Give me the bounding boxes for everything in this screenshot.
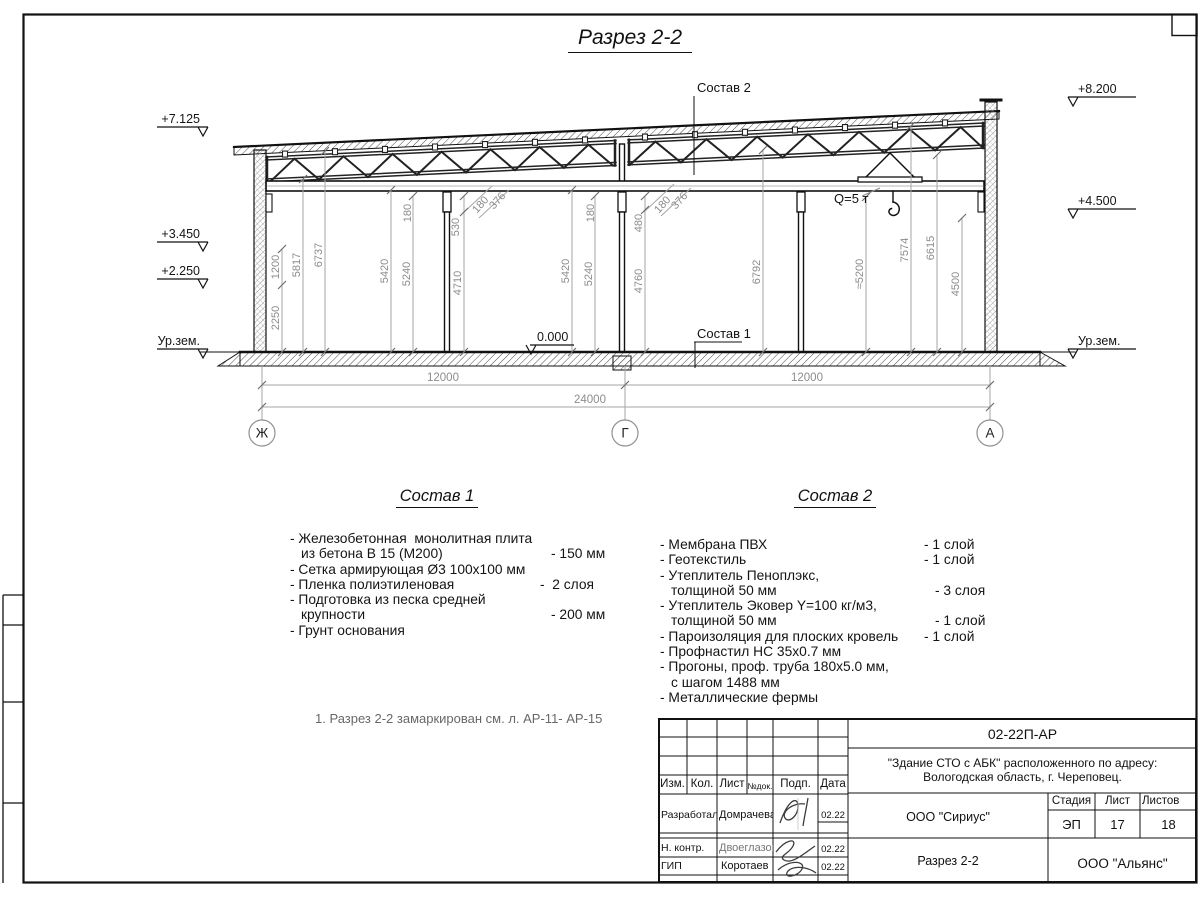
- tb-header-izm: Изм.: [658, 778, 687, 790]
- elevation-label: +8.200: [1078, 82, 1117, 96]
- tb-date: 02.22: [818, 862, 848, 873]
- tb-header-data: Дата: [818, 778, 848, 790]
- tb-sheets-label: Листов: [1142, 795, 1197, 807]
- tb-project-line2: Вологодская область, г. Череповец.: [848, 770, 1197, 784]
- dim-label: 6737: [313, 243, 325, 267]
- dim-label: 6792: [751, 260, 763, 284]
- tb-header-kol: Кол.: [687, 778, 717, 790]
- page-title: Разрез 2-2: [430, 26, 830, 50]
- crane-hook-icon: [889, 202, 899, 215]
- zero-level-label: 0.000: [537, 330, 568, 344]
- tb-date: 02.22: [818, 844, 848, 855]
- wall-bracket-right: [978, 192, 984, 212]
- dim-label: 5420: [560, 259, 572, 283]
- list-item: - Грунт основания: [290, 623, 605, 638]
- axis-bubble-zh: Ж: [256, 426, 269, 441]
- dim-label: 5240: [401, 262, 413, 286]
- column-2: [620, 212, 625, 352]
- list-item: - Мембрана ПВХ- 1 слой: [660, 537, 985, 552]
- list-item: из бетона В 15 (М200)- 150 мм: [290, 546, 605, 561]
- wall-bracket-left: [266, 194, 272, 212]
- tb-document-code: 02-22П-АР: [848, 726, 1197, 742]
- list-item: толщиной 50 мм- 3 слоя: [660, 583, 985, 598]
- dim-label: 1200: [270, 255, 282, 279]
- corner-stamp-box: [1172, 15, 1197, 36]
- elevation-label: Ур.зем.: [158, 334, 200, 348]
- list-item: - Железобетонная монолитная плита: [290, 531, 605, 546]
- signature: [776, 798, 816, 876]
- drawing-note: 1. Разрез 2-2 замаркирован см. л. АР-11-…: [315, 711, 602, 726]
- list-item: - Пленка полиэтиленовая- 2 слоя: [290, 577, 605, 592]
- column-3: [799, 212, 804, 352]
- sostav1-callout: Состав 1: [697, 326, 751, 341]
- sostav2-callout: Состав 2: [697, 80, 751, 95]
- list-item: - Прогоны, проф. труба 180х5.0 мм,: [660, 659, 985, 674]
- list-item: - Подготовка из песка средней: [290, 592, 605, 607]
- list-item: толщиной 50 мм- 1 слой: [660, 613, 985, 628]
- dim-label: 5420: [379, 259, 391, 283]
- list-item: - Пароизоляция для плоских кровель- 1 сл…: [660, 629, 985, 644]
- tb-header-list: Лист: [717, 778, 747, 790]
- tb-name: Домрачева: [719, 809, 773, 821]
- dim-label: 6615: [925, 236, 937, 260]
- dim-label: 24000: [574, 394, 606, 406]
- tb-sheet-number: 17: [1095, 817, 1140, 832]
- dim-label: 12000: [427, 372, 459, 384]
- dim-label: 5817: [291, 253, 303, 277]
- dim-label: 530: [450, 218, 462, 236]
- list-item: - Профнастил НС 35х0.7 мм: [660, 644, 985, 659]
- column-1: [445, 212, 450, 352]
- tb-header-ndok: №док.: [747, 781, 773, 791]
- tb-org-alyans: ООО "Альянс": [1048, 856, 1197, 871]
- apron-right: [1040, 352, 1065, 366]
- axis-bubbles: Ж Г А: [249, 420, 1003, 446]
- dim-label: 4760: [633, 269, 645, 293]
- sostav1-title: Состав 1: [337, 487, 537, 506]
- dim-label: 5240: [583, 262, 595, 286]
- tb-role: Н. контр.: [661, 842, 717, 854]
- dimensions: 2250 1200 5817 6737 5420 5240 180 530 47…: [258, 122, 994, 420]
- middle-column-upper: [620, 144, 625, 182]
- dim-label: ≈5200: [854, 259, 866, 290]
- elevation-label: +3.450: [161, 227, 200, 241]
- dim-label: 180: [585, 204, 597, 222]
- dim-label: 180: [402, 204, 414, 222]
- list-item: - Утеплитель Эковер Y=100 кг/м3,: [660, 598, 985, 613]
- dim-label: 376: [669, 190, 690, 212]
- axis-bubble-g: Г: [621, 426, 629, 441]
- elevation-label: +7.125: [161, 112, 200, 126]
- tb-stage-label: Стадия: [1048, 795, 1095, 807]
- vertical-dim-labels: 2250 1200 5817 6737 5420 5240 180 530 47…: [270, 190, 962, 330]
- list-item: - Утеплитель Пеноплэкс,: [660, 568, 985, 583]
- tb-header-podp: Подп.: [773, 778, 818, 790]
- dim-label: 12000: [791, 372, 823, 384]
- tb-stage-value: ЭП: [1048, 817, 1095, 832]
- list-item: - Металлические фермы: [660, 690, 985, 705]
- title-block: Изм. Кол. Лист №док. Подп. Дата Разработ…: [658, 718, 1197, 883]
- crane-capacity-label: Q=5 т: [834, 191, 869, 206]
- building-section: [200, 100, 1075, 370]
- dim-label: 2250: [270, 306, 282, 330]
- elevation-label: +2.250: [161, 264, 200, 278]
- dim-label: 4500: [950, 272, 962, 296]
- sostav1-list: - Железобетонная монолитная плита из бет…: [290, 531, 605, 638]
- list-item: крупности- 200 мм: [290, 607, 605, 622]
- apron-left: [218, 352, 240, 366]
- tb-sheet-title: Разрез 2-2: [848, 854, 1048, 868]
- floor-slab: [200, 352, 1075, 370]
- list-item: - Сетка армирующая Ø3 100х100 мм: [290, 562, 605, 577]
- tb-sheet-label: Лист: [1095, 795, 1140, 807]
- tb-role: Разработал: [661, 809, 717, 821]
- tb-role: ГИП: [661, 860, 717, 872]
- dim-label: 4710: [452, 271, 464, 295]
- tb-name: Коротаев: [721, 860, 775, 872]
- list-item: - Геотекстиль- 1 слой: [660, 552, 985, 567]
- elevation-label: +4.500: [1078, 194, 1117, 208]
- tb-project-line1: "Здание СТО с АБК" расположенного по адр…: [848, 756, 1197, 770]
- dim-label: 480: [633, 214, 645, 232]
- left-wall: [254, 150, 266, 352]
- column-foundation: [613, 356, 631, 370]
- drawing-sheet: 2250 1200 5817 6737 5420 5240 180 530 47…: [0, 0, 1200, 900]
- tb-date: 02.22: [818, 810, 848, 821]
- filing-strip: [3, 595, 23, 883]
- dim-label: 7574: [899, 238, 911, 262]
- sostav2-list: - Мембрана ПВХ- 1 слой - Геотекстиль- 1 …: [660, 537, 985, 705]
- tb-name: Двоеглазов: [719, 842, 773, 854]
- page-title-text: Разрез 2-2: [568, 26, 692, 53]
- tb-sheets-total: 18: [1140, 817, 1197, 832]
- tb-org-sirius: ООО "Сириус": [848, 810, 1048, 824]
- elevation-label: Ур.зем.: [1078, 334, 1120, 348]
- roof-deck: [234, 111, 999, 155]
- sostav2-title: Состав 2: [735, 487, 935, 506]
- axis-bubble-a: А: [985, 426, 994, 441]
- list-item: с шагом 1488 мм: [660, 675, 985, 690]
